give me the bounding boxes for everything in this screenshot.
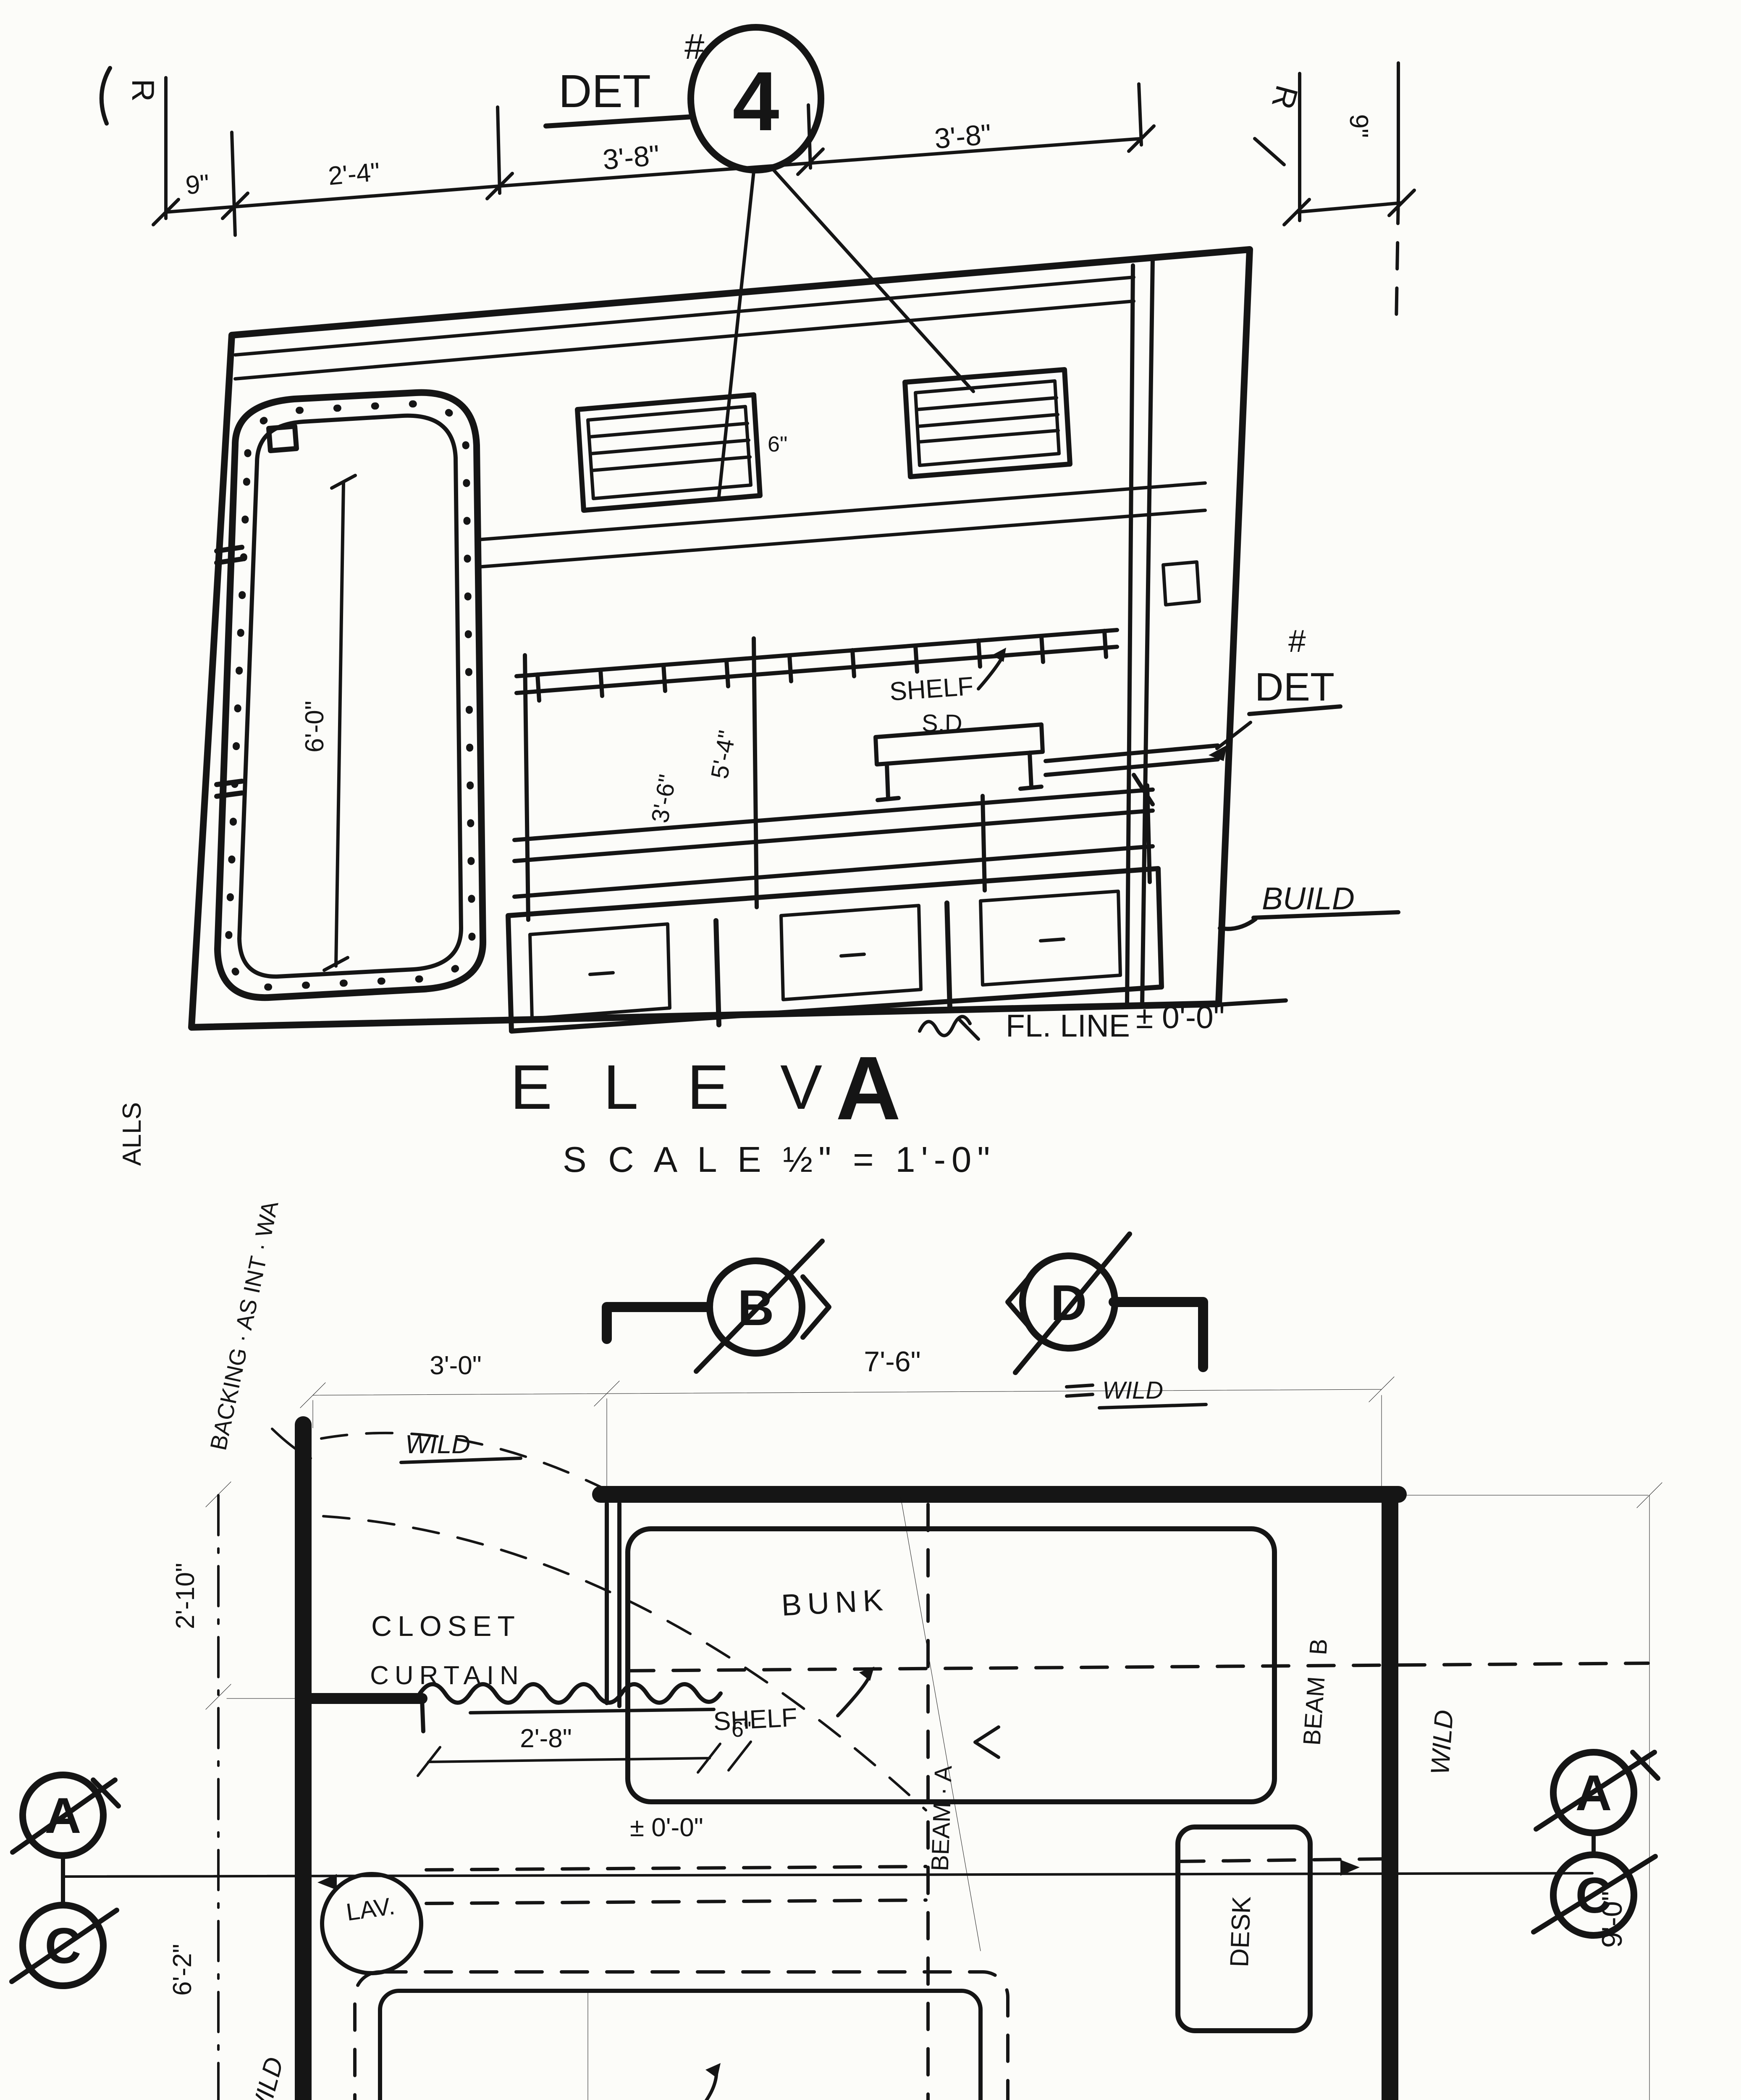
plan-dim-3-0-top: 3'-0" [430, 1351, 481, 1380]
curtain-label: CURTAIN [370, 1661, 524, 1690]
prop-bunks-outline [380, 1991, 981, 2100]
elevation-right-corner-post [1127, 258, 1153, 1005]
closet-stub-return [422, 1698, 423, 1731]
build-note: BUILD [1262, 881, 1355, 916]
floor-line-extension [1219, 1000, 1286, 1005]
elev-shelf-arrow [978, 655, 1004, 689]
door-height-dim: 6'-0" [300, 701, 329, 752]
backing-note: BACKING · AS INT · WA [205, 1198, 283, 1452]
bench-height-dim: 3'-6" [646, 772, 682, 825]
vent-gap-dim: 6" [768, 432, 787, 457]
elev-shelf-label: SHELF [889, 672, 974, 706]
wild-top-right-underline [1099, 1404, 1206, 1408]
elev-dim-3-8-b: 3'-8" [933, 118, 993, 155]
section-marker-a-right: A [1536, 1752, 1658, 1855]
detail-4-underline [546, 117, 692, 126]
elevation-scale: S C A L E ½" = 1'-0" [563, 1140, 996, 1180]
datum-label: ± 0'-0" [630, 1813, 703, 1842]
closet-label: CLOSET [371, 1610, 521, 1642]
prop-bunks-shelf-dashes [426, 1866, 926, 1903]
plan-right-dim-line [1403, 1483, 1662, 2100]
elevation-title-letter: A [836, 1037, 901, 1139]
closet-partition [607, 1504, 619, 1706]
detail-side-hash: # [1288, 623, 1306, 659]
coat-hooks [538, 631, 1106, 701]
floor-line-break [920, 1016, 978, 1039]
elev-sd-label: S.D. [922, 710, 969, 737]
detail-4-number: 4 [732, 55, 779, 148]
shelf-over-dashed-line [628, 1663, 1648, 1671]
plan-view: CLOSET CURTAIN 2'-8" 6" BUNK SHELF ± 0'-… [12, 1198, 1662, 2100]
elev-dim-3-8-a: 3'-8" [601, 139, 661, 176]
drawing-sheet: 6'-0" 6" 4 DET # DET # SHELF S.D. [0, 0, 1741, 2100]
beam-a-label: BEAM · A [926, 1765, 957, 1872]
beam-a-arrow [975, 1727, 999, 1757]
plan-dim-2-10: 2'-10" [171, 1563, 200, 1629]
elevation-view: 6'-0" 6" 4 DET # DET # SHELF S.D. [102, 27, 1414, 1180]
beam-b-label: BEAM · B [1298, 1638, 1333, 1746]
elev-dim-2-4: 2'-4" [327, 157, 381, 191]
section-marker-d-top: D [1008, 1234, 1203, 1373]
edge-tag-left-paren [102, 68, 110, 123]
set-design-drawing: 6'-0" 6" 4 DET # DET # SHELF S.D. [0, 0, 1741, 2100]
bunk-diagonal-line [901, 1497, 981, 1951]
plan-shelf-arrow [838, 1677, 869, 1716]
lav-circle [322, 1874, 421, 1973]
drawer-fronts [530, 891, 1120, 1018]
plan-dim-7-6-top: 7'-6" [864, 1346, 920, 1378]
desk-area-dashes [1178, 1859, 1382, 1861]
floor-line-label: FL. LINE [1006, 1008, 1130, 1043]
wild-right-upper-label: WILD [1426, 1709, 1459, 1776]
wild-top-right-equals [1067, 1385, 1093, 1396]
plan-dim-6-2: 6'-2" [168, 1944, 197, 1995]
prop-bunks-leader [672, 2075, 716, 2100]
wild-top-left-label: WILD [405, 1430, 470, 1459]
section-marker-c-left: C [12, 1905, 117, 1986]
section-marker-b-top: B [607, 1241, 829, 1371]
floor-line-value: ± 0'-0" [1136, 1000, 1224, 1035]
marker-b-top-stem [607, 1307, 708, 1339]
detail-side-label: DET [1255, 665, 1335, 709]
section-marker-c-right: C [1534, 1855, 1655, 1935]
hook-rail [517, 630, 1117, 693]
wild-left-label: WILD [244, 2054, 289, 2100]
section-line-ac [63, 1873, 1592, 1877]
marker-d-top-stem [1114, 1302, 1203, 1367]
wall-light [1163, 562, 1199, 605]
edge-tag-left: R [126, 79, 161, 102]
closet-dim-line [418, 1742, 751, 1776]
section-marker-a-left: A [13, 1775, 118, 1905]
shelf-height-dim: 5'-4" [706, 728, 741, 781]
elev-dim-9-left: 9" [184, 169, 210, 200]
plan-shelf-label: SHELF [713, 1703, 798, 1736]
lav-label: LAV. [344, 1892, 396, 1926]
build-leader [1220, 912, 1398, 929]
detail-4-label: DET [558, 66, 651, 117]
detail-side-leader [1217, 722, 1251, 748]
prop-bunks-arrowhead [705, 2063, 721, 2078]
curtain-rod [470, 1709, 714, 1713]
walls-partial-label: ALLS [118, 1102, 147, 1166]
bunk-label: BUNK [781, 1583, 890, 1622]
elev-right-dim-ext-dashed [1396, 197, 1398, 323]
detail-4-hash: # [684, 27, 704, 67]
desk-label: DESK [1225, 1896, 1256, 1968]
elev-dim-9-right: 9" [1344, 114, 1373, 138]
closet-dim-2-8: 2'-8" [520, 1724, 572, 1753]
